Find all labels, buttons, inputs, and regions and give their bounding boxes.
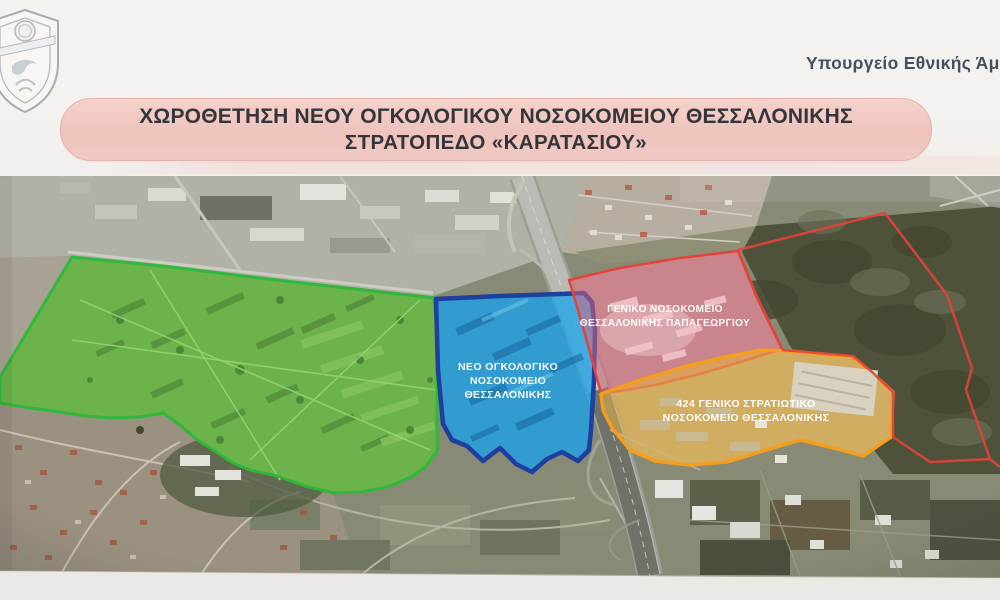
page-title-line-1: ΧΩΡΟΘΕΤΗΣΗ ΝΕΟΥ ΟΓΚΟΛΟΓΙΚΟΥ ΝΟΣΟΚΟΜΕΙΟΥ … — [139, 104, 853, 130]
army-emblem-icon — [0, 5, 64, 117]
poster-photo: Υπουργείο Εθνικής Άμυν ΧΩΡΟΘΕΤΗΣΗ ΝΕΟΥ Ο… — [0, 0, 1000, 600]
page-title-line-2: ΣΤΡΑΤΟΠΕΔΟ «ΚΑΡΑΤΑΣΙΟΥ» — [345, 130, 647, 155]
ministry-label: Υπουργείο Εθνικής Άμυν — [806, 53, 1000, 74]
title-banner: ΧΩΡΟΘΕΤΗΣΗ ΝΕΟΥ ΟΓΚΟΛΟΓΙΚΟΥ ΝΟΣΟΚΟΜΕΙΟΥ … — [60, 98, 932, 161]
satellite-map-image: ΝΕΟ ΟΓΚΟΛΟΓΙΚΟ ΝΟΣΟΚΟΜΕΙΟ ΘΕΣΣΑΛΟΝΙΚΗΣ Γ… — [0, 176, 1000, 600]
